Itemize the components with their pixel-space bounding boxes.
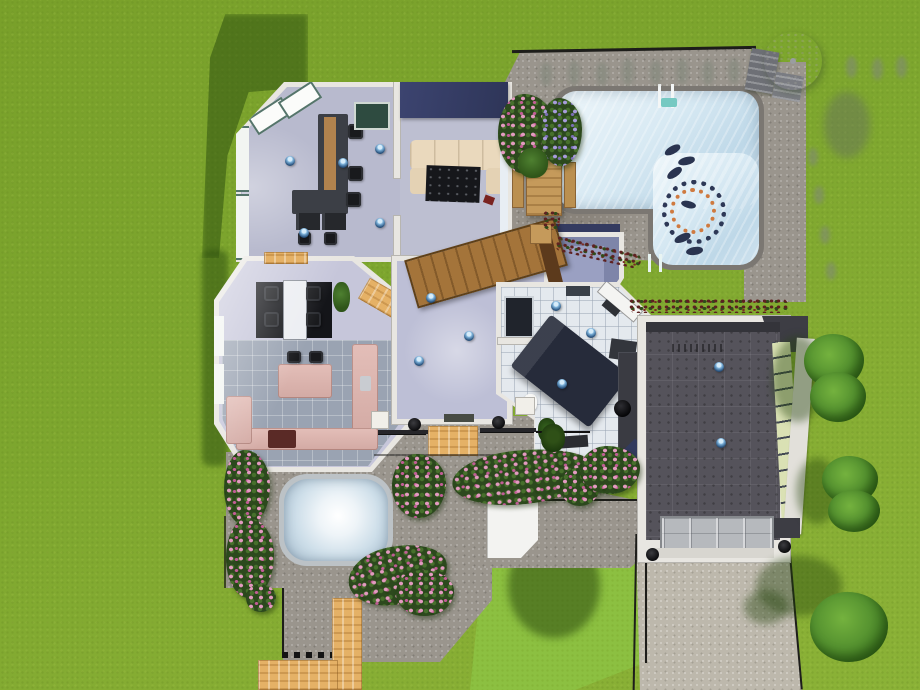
- porch-lamp[interactable]: [408, 418, 421, 431]
- blue-floor-lamp[interactable]: [414, 356, 424, 366]
- driveway-bollard: [646, 548, 659, 561]
- round-black-object[interactable]: [614, 400, 631, 417]
- porch-column: [372, 412, 388, 428]
- potted-plant[interactable]: [333, 282, 350, 312]
- porch-fence: [378, 430, 428, 434]
- grass-tuft: [650, 60, 662, 85]
- computer-desk[interactable]: [322, 210, 346, 230]
- grass-tuft: [568, 60, 580, 86]
- driveway-bollard: [778, 540, 791, 553]
- computer-desk[interactable]: [296, 210, 320, 230]
- dining-window: [214, 316, 224, 356]
- grass-tuft: [596, 62, 608, 86]
- grass-tuft: [702, 60, 714, 85]
- plunge-pool[interactable]: [284, 479, 388, 561]
- blue-floor-lamp[interactable]: [557, 379, 567, 389]
- blue-floor-lamp[interactable]: [586, 328, 596, 338]
- grass-tuft: [826, 262, 836, 280]
- garage-sill: [650, 548, 774, 558]
- office-doormat: [264, 252, 308, 264]
- tree: [828, 490, 880, 532]
- kitchen-island[interactable]: [278, 364, 332, 398]
- path-fence-dashes: [282, 652, 338, 658]
- blue-floor-lamp[interactable]: [551, 301, 561, 311]
- dining-chair[interactable]: [264, 286, 279, 301]
- grass-tuft: [676, 58, 688, 84]
- grass-tuft: [728, 58, 740, 84]
- wood-walkway-block: [258, 660, 338, 690]
- dining-chair[interactable]: [306, 286, 321, 301]
- porch-fence: [480, 428, 536, 432]
- garage-se-dark: [772, 518, 800, 538]
- garage-header: [646, 322, 780, 332]
- blue-floor-lamp[interactable]: [285, 156, 295, 166]
- tree: [810, 592, 888, 662]
- grass-tuft: [814, 186, 824, 204]
- grass-tuft: [846, 56, 857, 78]
- blue-floor-lamp[interactable]: [464, 331, 474, 341]
- kitchen-sink[interactable]: [360, 376, 371, 391]
- blue-floor-lamp[interactable]: [426, 293, 436, 303]
- dining-window: [214, 364, 224, 404]
- grass-tuft: [820, 226, 830, 244]
- office-wall-glass: [236, 126, 249, 192]
- hall-light-pool: [402, 296, 512, 406]
- palm-plant: [541, 424, 565, 452]
- desk-wood-top: [324, 117, 336, 197]
- bar-stool[interactable]: [287, 351, 301, 363]
- pool-ladder-south[interactable]: [648, 254, 664, 272]
- garage-door[interactable]: [660, 516, 774, 550]
- media-rug[interactable]: [425, 165, 480, 203]
- office-wall-glass: [236, 194, 249, 260]
- grass-tuft: [872, 58, 883, 80]
- flower-bush: [246, 584, 276, 612]
- blue-floor-lamp[interactable]: [375, 144, 385, 154]
- stove[interactable]: [268, 430, 296, 448]
- blue-floor-lamp[interactable]: [716, 438, 726, 448]
- closet-door-teal[interactable]: [354, 102, 390, 130]
- dining-chair[interactable]: [264, 312, 279, 327]
- bar-stool[interactable]: [309, 351, 323, 363]
- picnic-bench[interactable]: [564, 162, 576, 208]
- kitchen-counter-left[interactable]: [226, 396, 252, 444]
- path-edge-left: [282, 588, 284, 658]
- grass-tuft: [896, 56, 907, 78]
- umbrella-shadow: [824, 92, 870, 158]
- porch-column: [516, 398, 534, 414]
- game-lot-view: [0, 0, 920, 690]
- bathroom-vanity[interactable]: [566, 286, 590, 296]
- pool-step-mat: [661, 98, 677, 107]
- office-chair[interactable]: [346, 192, 361, 207]
- garage-floor: [646, 328, 780, 540]
- room-dining-kitchen: [214, 256, 410, 472]
- garage-gold-rack[interactable]: [672, 344, 726, 352]
- pool-mosaic-ring-inner: [670, 188, 716, 234]
- shrub: [518, 148, 548, 178]
- blue-floor-lamp[interactable]: [299, 228, 309, 238]
- tree-shadow: [744, 590, 788, 624]
- blue-floor-lamp[interactable]: [714, 362, 724, 372]
- red-groundcover: [542, 210, 560, 230]
- red-groundcover: [628, 298, 788, 313]
- flat-roof-navy: [400, 82, 508, 118]
- grass-tuft: [622, 58, 634, 85]
- shower-stall[interactable]: [504, 296, 534, 338]
- grass-tuft: [540, 62, 552, 86]
- porch-lamp[interactable]: [492, 416, 505, 429]
- dining-table[interactable]: [283, 280, 307, 340]
- desk-chair[interactable]: [324, 232, 337, 245]
- blue-floor-lamp[interactable]: [338, 158, 348, 168]
- umbrella-pole: [790, 58, 796, 64]
- office-chair[interactable]: [348, 166, 363, 181]
- dining-chair[interactable]: [306, 312, 321, 327]
- flower-bush: [580, 446, 640, 494]
- tree: [810, 372, 866, 422]
- blue-floor-lamp[interactable]: [375, 218, 385, 228]
- entry-doormat: [428, 426, 478, 456]
- front-door[interactable]: [444, 414, 474, 422]
- grass-tuft: [808, 148, 818, 166]
- kitchen-counter-bottom[interactable]: [236, 428, 378, 450]
